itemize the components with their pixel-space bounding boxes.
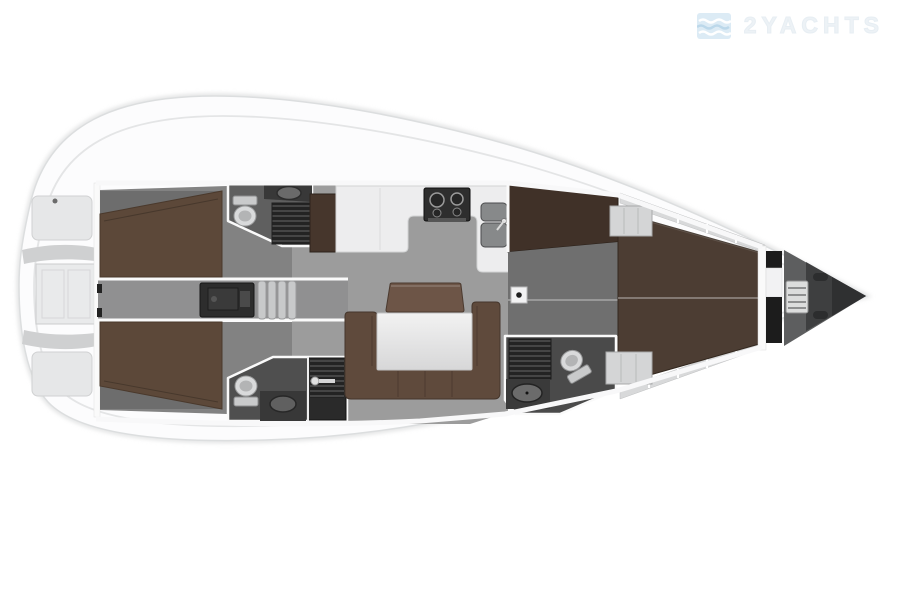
transom-door-panel xyxy=(36,264,96,324)
forward-dressing-area xyxy=(508,184,618,336)
foot-locker-starboard xyxy=(606,352,652,384)
forward-head-drain xyxy=(526,392,529,395)
deck-handle-top xyxy=(813,273,828,281)
burner xyxy=(453,208,461,216)
aft-head-port-sink xyxy=(277,187,301,200)
backrest-seat xyxy=(386,283,464,312)
anchor-locker-tip xyxy=(832,277,866,316)
stern-panel-top xyxy=(32,196,92,240)
stern-fitting-dot xyxy=(53,199,58,204)
step xyxy=(278,281,286,319)
watermark: 2YACHTS xyxy=(697,12,884,39)
deck-handle-bottom xyxy=(813,311,828,319)
bulkhead-panel-light xyxy=(766,268,782,297)
mast-post-bolt xyxy=(516,292,522,298)
aft-head-starboard-sink xyxy=(270,396,296,412)
transom-hinge-bottom xyxy=(97,308,102,317)
forward-head-shower-grate xyxy=(509,339,551,379)
salon-table xyxy=(377,313,472,370)
yacht-floor-plan xyxy=(0,0,900,600)
step xyxy=(288,281,296,319)
burner xyxy=(451,193,463,205)
anchor-locker xyxy=(784,250,866,346)
sink-basin xyxy=(481,223,507,247)
bulkhead-panel-dark-top xyxy=(766,251,782,268)
stove-rail xyxy=(428,218,466,221)
bulkhead-panel-dark-bottom xyxy=(766,297,782,343)
windlass xyxy=(786,281,808,313)
galley-cabinet-brown xyxy=(310,194,338,252)
watermark-brand: 2YACHTS xyxy=(744,12,884,39)
step xyxy=(258,281,266,319)
aft-head-port-shower-grate xyxy=(272,203,310,244)
shower-head xyxy=(311,377,319,385)
galley-double-sink xyxy=(481,203,507,247)
foot-locker-port xyxy=(610,206,652,236)
locker-top xyxy=(606,352,652,384)
burner xyxy=(430,193,444,207)
engine-compartment xyxy=(200,283,254,317)
waves-logo-icon xyxy=(697,13,731,39)
aft-head-starboard-toilet xyxy=(234,376,258,406)
step xyxy=(268,281,276,319)
stern-panel-bottom xyxy=(32,352,92,396)
aft-head-port-toilet xyxy=(233,196,257,226)
stove xyxy=(424,188,470,221)
burner xyxy=(433,209,441,217)
transom-hinge-top xyxy=(97,284,102,293)
engine-detail-pulley xyxy=(211,296,217,302)
forepeak-bulkhead xyxy=(758,246,766,350)
engine-detail-side xyxy=(240,291,250,307)
shower-arm xyxy=(319,379,335,383)
locker-top xyxy=(610,206,652,236)
companionway xyxy=(96,279,348,320)
page: 2YACHTS xyxy=(0,0,900,600)
